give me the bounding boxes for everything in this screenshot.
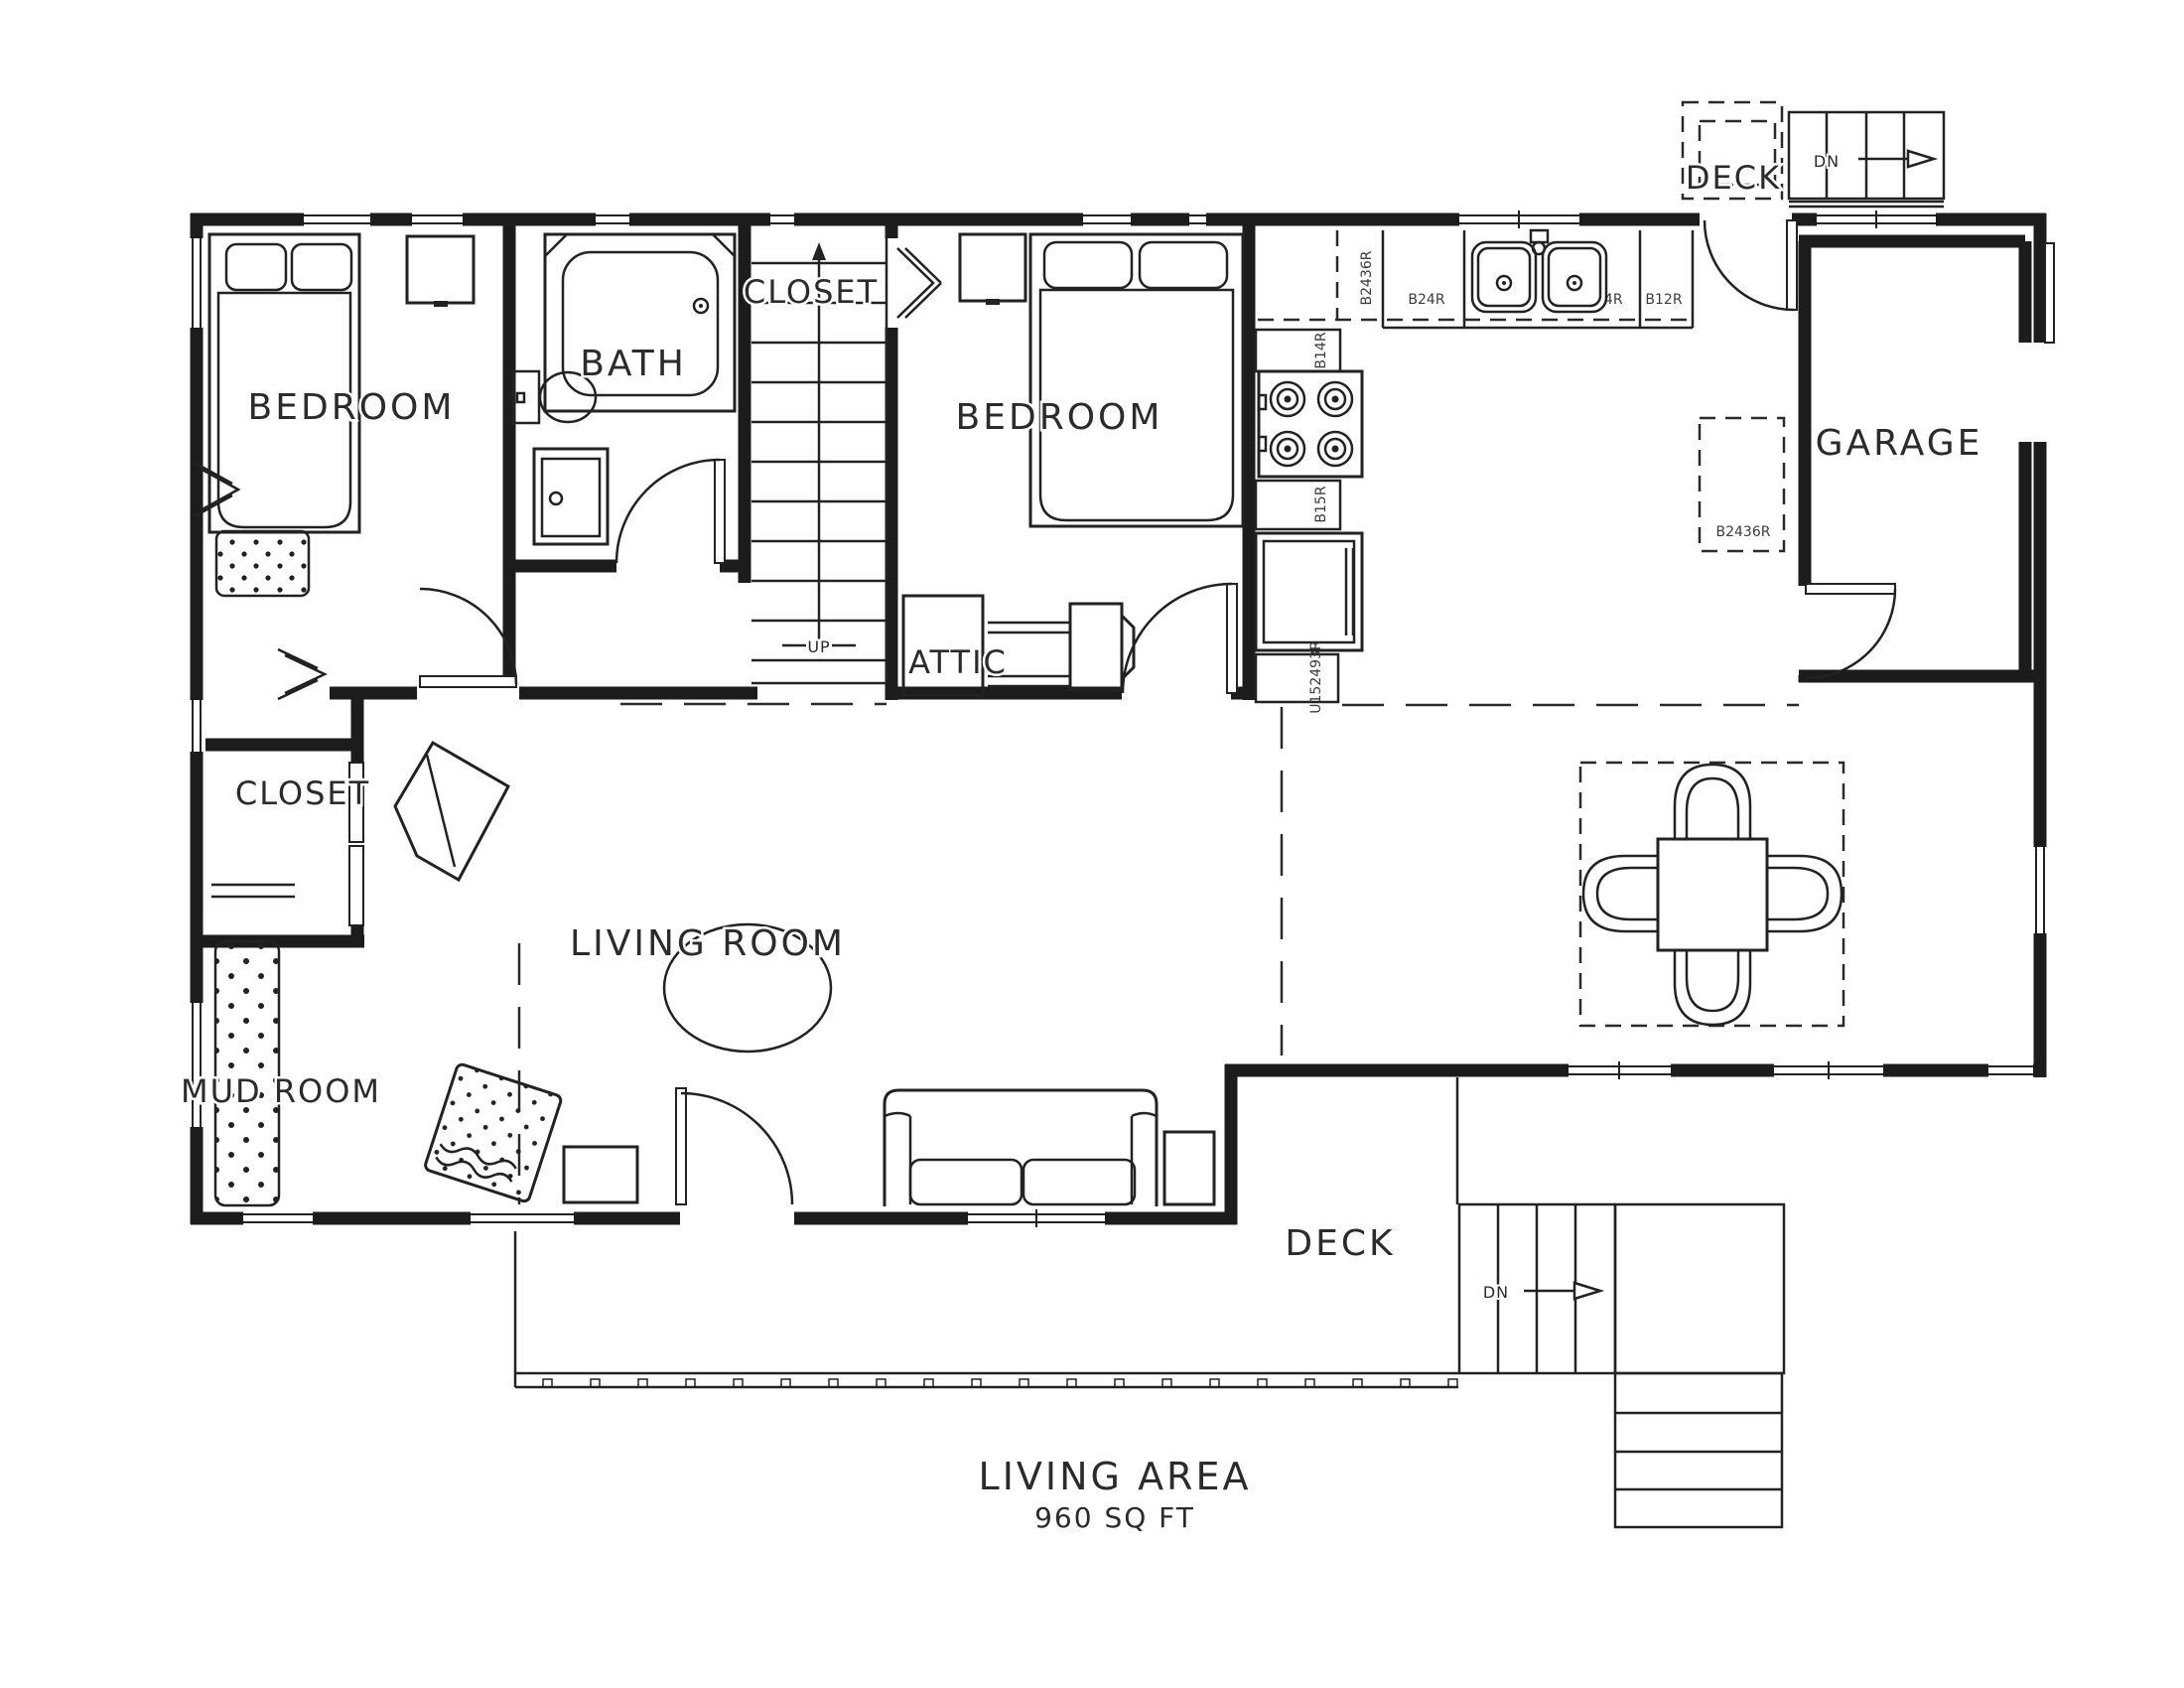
room-label-attic: ATTIC [908, 643, 1008, 681]
window-symbol [188, 700, 205, 752]
room-label-living-room: LIVING ROOM [570, 923, 846, 964]
floor-plan-canvas: UP [0, 0, 2184, 1688]
cabinet-label: B2436R [1359, 250, 1375, 305]
window-symbol [304, 211, 370, 228]
room-label-deck-lower: DECK [1285, 1223, 1395, 1264]
room-label-mud-room: MUD ROOM [181, 1072, 381, 1110]
stair-dn-upper-label: DN [1814, 152, 1840, 171]
cabinet-label: U152493R [1308, 640, 1324, 714]
room-label-bedroom-middle: BEDROOM [956, 397, 1163, 438]
window-symbol [1189, 211, 1206, 228]
living-area-title: LIVING AREA [979, 1455, 1252, 1498]
window-symbol [2031, 847, 2049, 933]
room-label-bedroom-left: BEDROOM [248, 387, 456, 428]
window-symbol [1817, 211, 1936, 228]
room-label-deck-upper: DECK [1686, 159, 1781, 197]
window-symbol [1988, 1061, 2033, 1079]
window-symbol [1569, 1061, 1671, 1079]
window-symbol [1774, 1061, 1883, 1079]
window-symbol [412, 211, 463, 228]
cabinet-label: B14R [1313, 332, 1329, 368]
stair-up-label: UP [807, 637, 830, 656]
window-symbol [968, 1209, 1105, 1227]
window-symbol [596, 211, 629, 228]
room-label-closet-left: CLOSET [235, 774, 370, 812]
window-symbol [188, 238, 205, 328]
garage-side-door [2045, 243, 2054, 343]
window-symbol [1083, 211, 1131, 228]
window-symbol [471, 1209, 574, 1227]
window-symbol [1459, 211, 1579, 228]
cabinet-label: B15R [1313, 486, 1329, 522]
room-label-garage: GARAGE [1816, 423, 1983, 464]
rug [216, 531, 309, 596]
deck-railing [515, 1373, 1458, 1387]
room-label-bath: BATH [580, 344, 687, 384]
cabinet-label: B12R [1645, 292, 1682, 308]
cabinet-label: B2436R [1716, 524, 1771, 540]
cabinet-label: B24R [1408, 292, 1444, 308]
living-area-value: 960 SQ FT [1034, 1501, 1195, 1534]
window-symbol [770, 211, 794, 228]
window-symbol [243, 1209, 313, 1227]
paper-background [0, 0, 2184, 1688]
stair-dn-lower-label: DN [1483, 1283, 1509, 1302]
room-label-closet-upper: CLOSET [744, 273, 879, 311]
